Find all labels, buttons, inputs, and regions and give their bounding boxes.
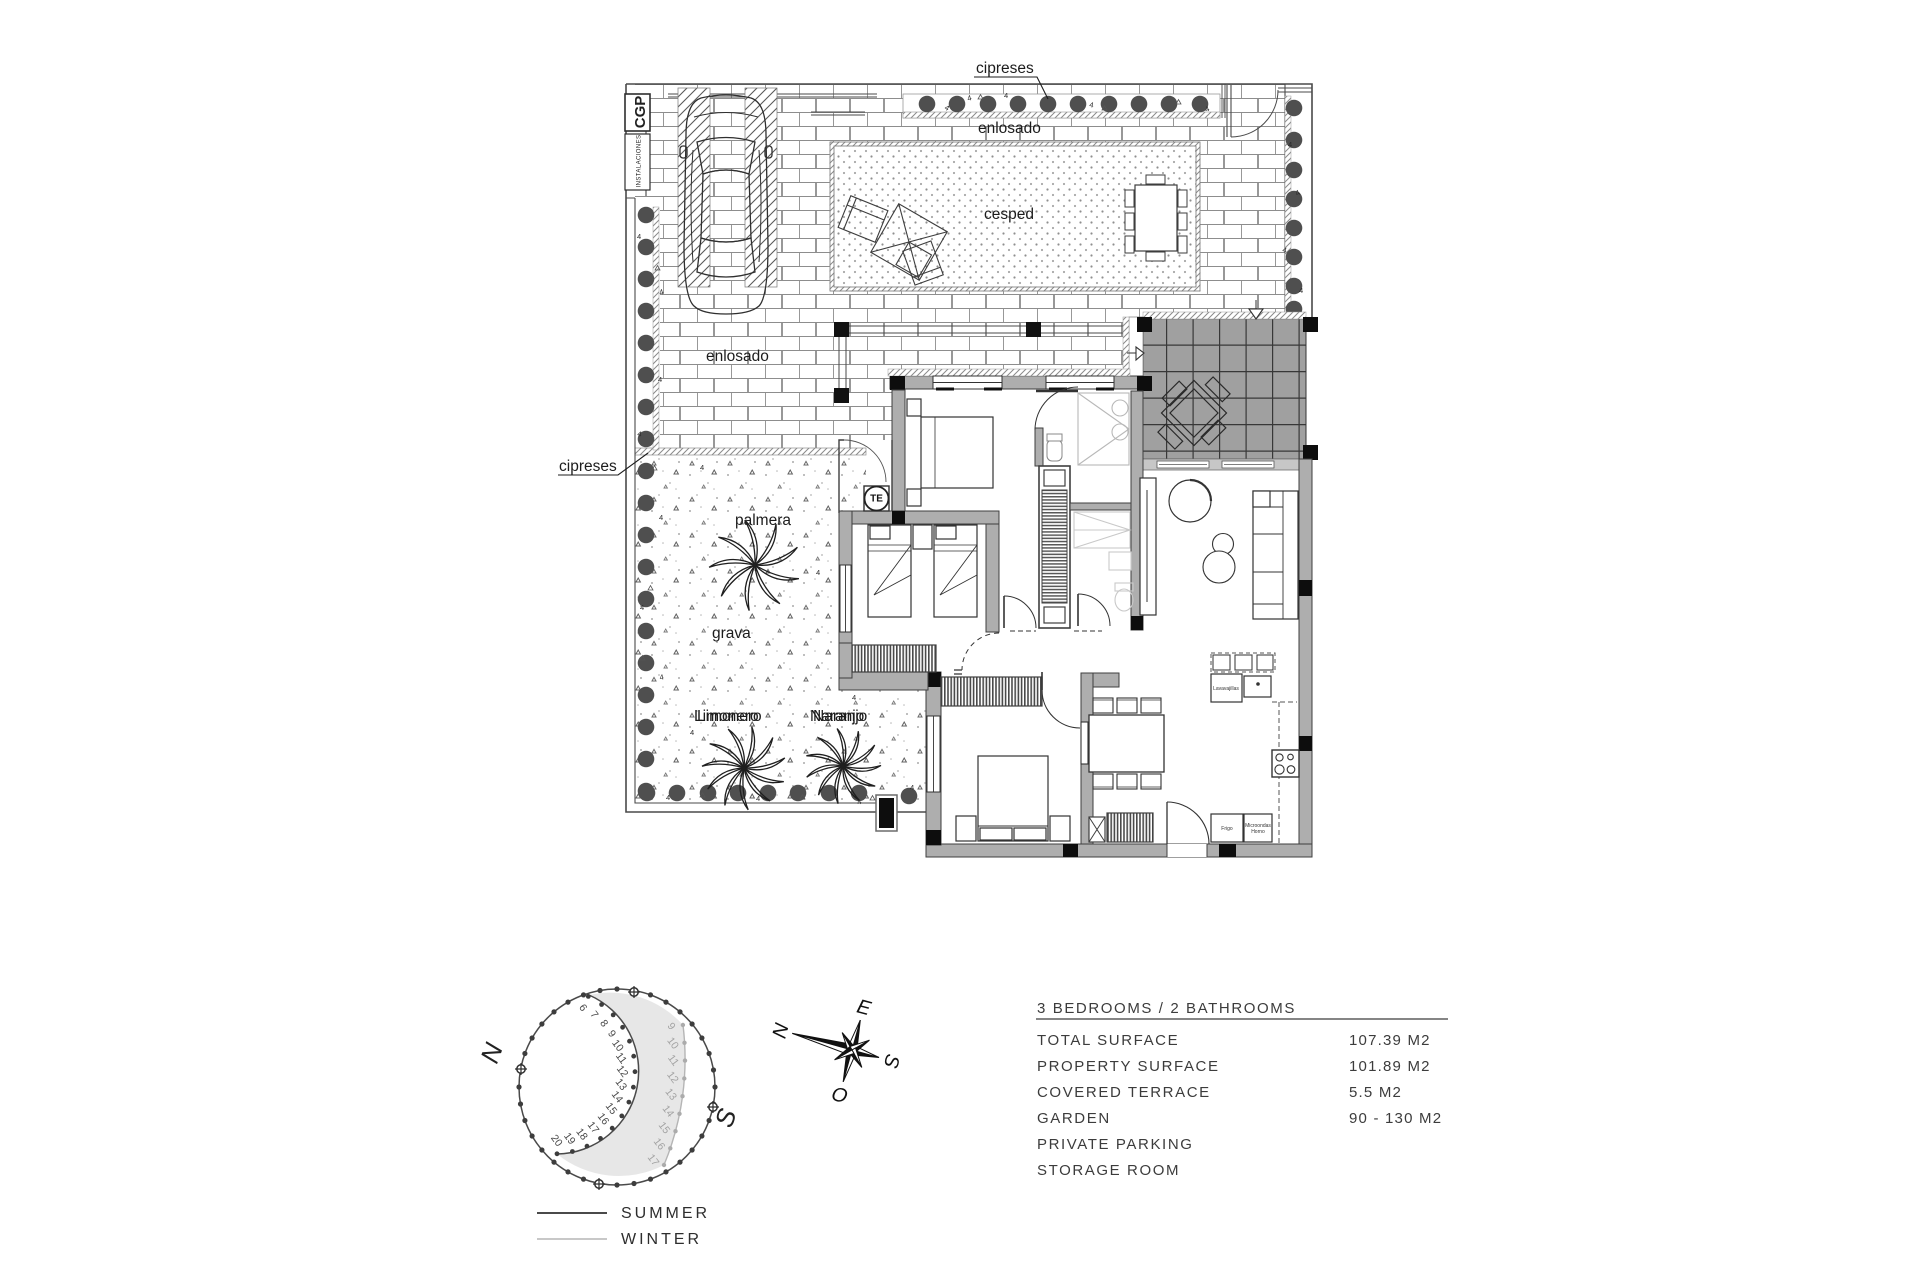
svg-text:3 BEDROOMS / 2 BATHROOMS: 3 BEDROOMS / 2 BATHROOMS (1037, 1000, 1296, 1017)
svg-text:cipreses: cipreses (559, 458, 617, 475)
svg-text:4: 4 (640, 603, 644, 612)
svg-text:4: 4 (852, 693, 856, 702)
svg-text:Naranjo: Naranjo (813, 708, 867, 725)
svg-text:STORAGE ROOM: STORAGE ROOM (1037, 1162, 1180, 1179)
svg-text:4: 4 (1299, 286, 1303, 295)
svg-text:5.5 M2: 5.5 M2 (1349, 1084, 1402, 1101)
svg-text:CGP: CGP (632, 96, 649, 129)
svg-text:grava: grava (712, 625, 751, 642)
svg-text:Frigo: Frigo (1221, 826, 1233, 832)
svg-text:4: 4 (659, 513, 663, 522)
svg-text:4: 4 (658, 375, 662, 384)
svg-text:PRIVATE PARKING: PRIVATE PARKING (1037, 1136, 1194, 1153)
svg-text:4: 4 (910, 783, 914, 792)
svg-text:4: 4 (690, 728, 694, 737)
svg-text:palmera: palmera (735, 512, 791, 529)
svg-text:cipreses: cipreses (976, 60, 1034, 77)
svg-text:Lavavajillas: Lavavajillas (1213, 686, 1239, 692)
svg-text:cesped: cesped (984, 206, 1034, 223)
svg-text:101.89 M2: 101.89 M2 (1349, 1058, 1431, 1075)
svg-text:GARDEN: GARDEN (1037, 1110, 1111, 1127)
svg-text:Horno: Horno (1251, 829, 1265, 835)
svg-text:4: 4 (637, 232, 641, 241)
svg-text:TOTAL SURFACE: TOTAL SURFACE (1037, 1032, 1179, 1049)
svg-text:107.39 M2: 107.39 M2 (1349, 1032, 1431, 1049)
svg-text:enlosado: enlosado (978, 120, 1041, 137)
svg-text:4: 4 (1288, 140, 1292, 149)
svg-text:4: 4 (700, 463, 704, 472)
svg-text:4: 4 (666, 793, 670, 802)
svg-text:WINTER: WINTER (621, 1231, 702, 1248)
svg-text:INSTALACIONES: INSTALACIONES (637, 135, 643, 188)
svg-text:90 - 130 M2: 90 - 130 M2 (1349, 1110, 1442, 1127)
svg-text:Limonero: Limonero (697, 708, 762, 725)
svg-text:SUMMER: SUMMER (621, 1205, 710, 1222)
svg-text:TE: TE (870, 494, 883, 505)
svg-text:enlosado: enlosado (706, 348, 769, 365)
svg-text:PROPERTY SURFACE: PROPERTY SURFACE (1037, 1058, 1220, 1075)
svg-text:COVERED TERRACE: COVERED TERRACE (1037, 1084, 1211, 1101)
svg-text:4: 4 (1004, 91, 1008, 100)
svg-text:4: 4 (816, 568, 820, 577)
